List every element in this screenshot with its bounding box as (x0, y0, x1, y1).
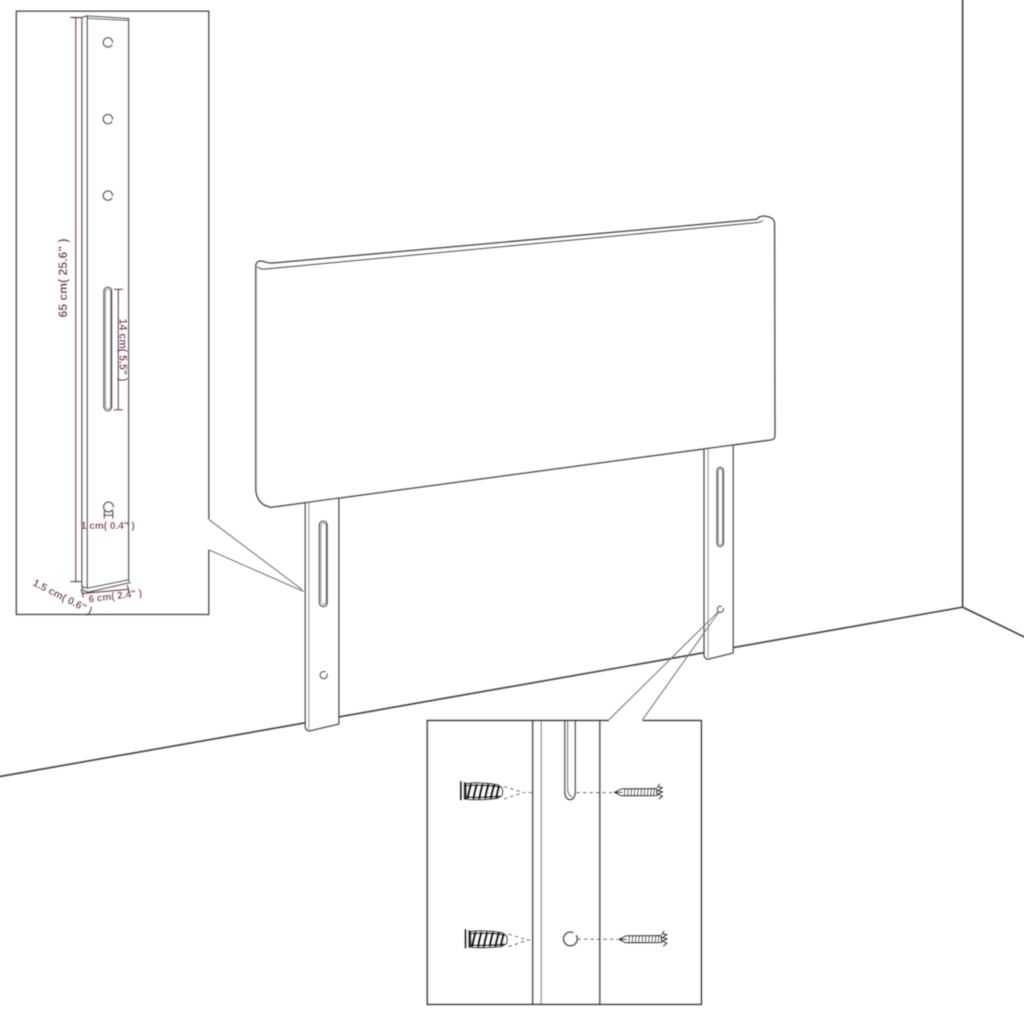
svg-text:65 cm( 25.6" ): 65 cm( 25.6" ) (56, 239, 70, 318)
svg-text:1 cm( 0.4" ): 1 cm( 0.4" ) (81, 521, 135, 532)
svg-text:14 cm( 5.5" ): 14 cm( 5.5" ) (117, 319, 129, 382)
